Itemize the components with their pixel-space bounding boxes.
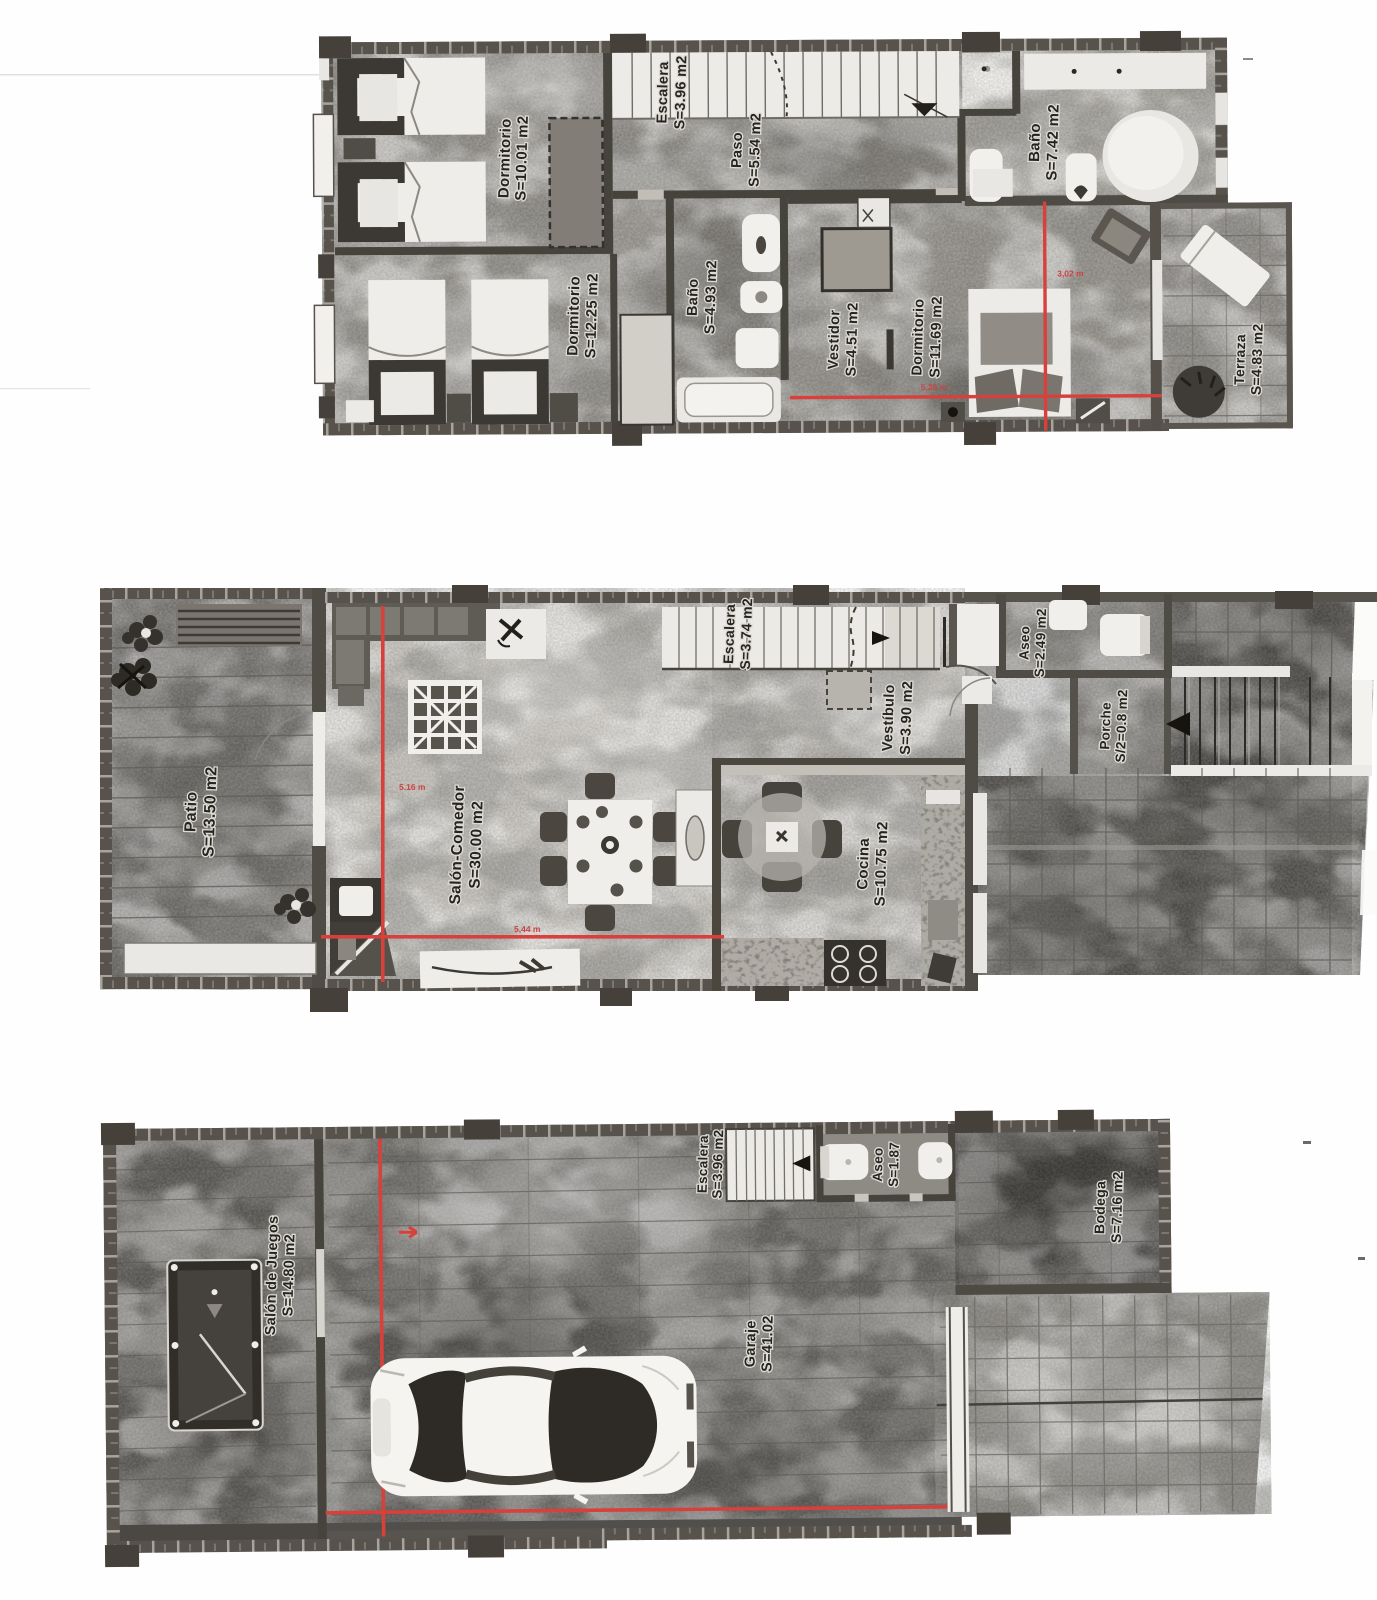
svg-text:S=11.69 m2: S=11.69 m2 [927, 296, 945, 378]
svg-text:Baño: Baño [1026, 123, 1044, 162]
svg-text:Patio: Patio [182, 791, 200, 832]
svg-text:S=4.51 m2: S=4.51 m2 [843, 302, 861, 376]
svg-text:S=5.54 m2: S=5.54 m2 [746, 113, 764, 187]
svg-text:Vestíbulo: Vestíbulo [880, 684, 898, 752]
svg-text:S=3.96 m2: S=3.96 m2 [709, 1129, 726, 1198]
svg-text:Escalera: Escalera [654, 61, 672, 124]
svg-text:S=10.01 m2: S=10.01 m2 [512, 115, 532, 201]
svg-text:S/2=0.8 m2: S/2=0.8 m2 [1113, 689, 1131, 763]
svg-text:Porche: Porche [1097, 702, 1114, 750]
svg-text:Aseo: Aseo [870, 1147, 886, 1182]
svg-text:Escalera: Escalera [720, 604, 738, 665]
svg-text:Dormitorio: Dormitorio [564, 276, 583, 356]
svg-text:S=1.87: S=1.87 [886, 1142, 902, 1187]
svg-text:Salón de Juegos: Salón de Juegos [263, 1215, 282, 1335]
svg-text:S=10.75 m2: S=10.75 m2 [872, 821, 892, 907]
svg-text:5,26 m: 5,26 m [921, 382, 948, 392]
svg-text:5,44 m: 5,44 m [514, 924, 541, 934]
svg-text:S=4.83 m2: S=4.83 m2 [1248, 323, 1266, 395]
svg-text:Cocina: Cocina [854, 837, 873, 890]
svg-text:Baño: Baño [685, 278, 702, 316]
svg-text:Bodega: Bodega [1091, 1181, 1108, 1235]
svg-text:S=14.80 m2: S=14.80 m2 [280, 1234, 298, 1317]
svg-text:S=7.16 m2: S=7.16 m2 [1108, 1171, 1126, 1243]
svg-text:S=4.93 m2: S=4.93 m2 [702, 260, 720, 334]
svg-text:Aseo: Aseo [1016, 625, 1032, 660]
svg-text:S=3.74 m2: S=3.74 m2 [737, 598, 755, 670]
svg-text:5.16 m: 5.16 m [399, 782, 426, 792]
svg-text:Paso: Paso [729, 132, 746, 168]
svg-text:S=3.96 m2: S=3.96 m2 [672, 55, 690, 129]
svg-text:Terraza: Terraza [1231, 334, 1249, 385]
svg-text:S=30.00 m2: S=30.00 m2 [466, 801, 486, 889]
svg-text:Dormitorio: Dormitorio [909, 298, 927, 376]
svg-text:S=3.90 m2: S=3.90 m2 [898, 681, 917, 756]
svg-text:S=41.02: S=41.02 [759, 1315, 776, 1372]
svg-text:Vestidor: Vestidor [826, 309, 844, 369]
svg-text:S=7.42 m2: S=7.42 m2 [1043, 104, 1062, 181]
svg-text:S=13.50 m2: S=13.50 m2 [200, 766, 220, 857]
svg-text:Escalera: Escalera [695, 1135, 711, 1194]
svg-text:3,02 m: 3,02 m [1057, 268, 1084, 278]
svg-text:S=2.49 m2: S=2.49 m2 [1032, 608, 1049, 678]
svg-text:Garaje: Garaje [742, 1320, 759, 1367]
svg-text:S=12.25 m2: S=12.25 m2 [582, 273, 602, 359]
